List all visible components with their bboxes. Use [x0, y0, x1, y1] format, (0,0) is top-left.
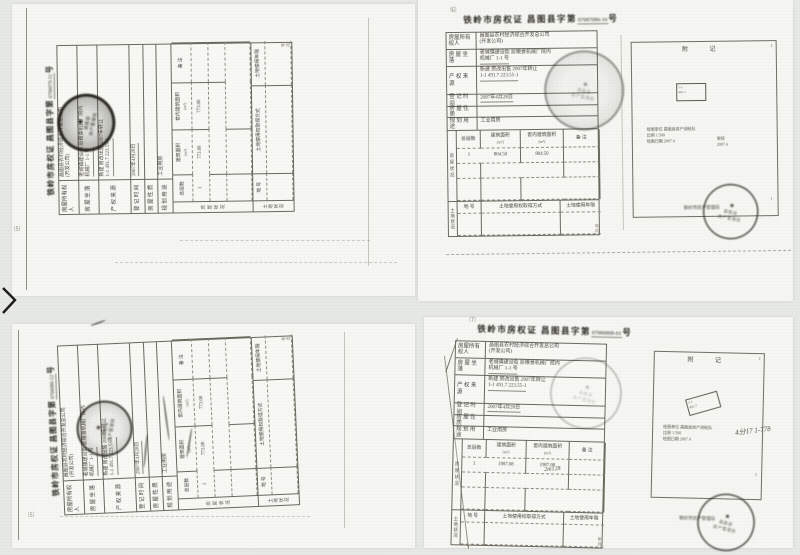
certificate-bottom-right: ⑺ 铁岭市房权证 昌图县字第07080808-61号 房屋所有权人昌图县农村经济…: [445, 318, 795, 552]
annex-page-box: 附 记 1 1 1-1491.7 绘图单位 昌图县房产测绘队比例 1:500绘图…: [631, 40, 779, 218]
land-table: 土地状况 地 号 土地使用权取得方式 土地使用年限 年月: [252, 336, 299, 506]
corner-tick: 1: [755, 472, 757, 477]
page-number-mark: ⑸: [28, 510, 34, 519]
area-table: 房屋状况 总层数 建筑面积(m²) 套内建筑面积(m²) 备 注 1 773.0…: [172, 338, 259, 509]
certificate-top-right: ⑹ 铁岭市房权证 昌图县字第07087086-16号 房屋所有权人昌图县农村经济…: [440, 0, 795, 310]
page-number-mark: ⑸: [14, 224, 20, 233]
cert-title-county: 昌图县字第: [541, 325, 591, 336]
cert-title-suffix: 号: [622, 327, 632, 337]
annex-heading: 附 记: [655, 354, 764, 365]
cert-title: 铁岭市房权证 昌图县字第07080808-61号: [477, 323, 632, 339]
page-number-mark: ⑺: [469, 315, 475, 324]
page-edge-dashes: [115, 262, 397, 263]
corner-tick: 1: [770, 43, 772, 48]
drawing-caption: 绘图单位 昌图县房产测绘队比例 1:500绘图日期 2007.4: [647, 126, 696, 145]
area-floors: 1: [197, 469, 215, 497]
cert-title-city: 铁岭市房权证: [463, 14, 523, 25]
area-built: 773.08: [196, 424, 215, 470]
cert-title-city: 铁岭市房权证: [49, 445, 60, 496]
area-floors: 1: [193, 173, 210, 200]
booklet-seam-line: [621, 35, 624, 230]
area-table: 房屋状况 总层数 建筑面积(m²) 套内建筑面积(m²) 备 注 1 804.5…: [448, 129, 599, 202]
area-side-label: 房屋状况: [174, 200, 253, 212]
corner-tick: 1: [770, 196, 772, 201]
cert-title-suffix: 号: [46, 365, 55, 374]
area-built: 1987.08: [486, 458, 526, 474]
area-inner: 804.50: [521, 148, 564, 164]
area-floors: 1: [462, 457, 486, 473]
cert-title-city: 铁岭市房权证: [46, 144, 56, 195]
cert-title-county: 昌图县字第: [527, 13, 577, 24]
form-row-owner: 房屋所有权人昌图县农村经济综合开发总公司(开发公司): [446, 31, 596, 50]
certificate-bottom-left-rotated: 铁岭市房权证 昌图县字第0706080-12号 房屋所有权人昌图县农村经济综合开…: [44, 335, 306, 516]
building-outline: 1-1491.7: [676, 83, 706, 101]
annex-heading: 附 记: [632, 43, 776, 54]
cert-title-suffix: 号: [608, 13, 618, 23]
area-table: 房屋状况 总层数 建筑面积(m²) 套内建筑面积(m²) 备 注 1 773.0…: [171, 43, 253, 212]
drawing-caption: 绘图单位 昌图县房产测绘队比例 1:500绘图日期 2007.4: [663, 424, 712, 443]
cert-title-suffix: 号: [45, 64, 54, 73]
cert-number: 07087086-16: [577, 17, 608, 24]
fold-chevron-icon: [1, 286, 19, 316]
land-table: 土地状况 地 号 土地使用权取得方式 土地使用年限 年月: [451, 510, 602, 547]
cert-title-county: 昌图县字第: [47, 399, 58, 442]
review-note: 审核2007.4: [717, 136, 728, 148]
corner-tick: 1: [758, 356, 760, 361]
land-table: 土地状况 地 号 土地使用权取得方式 土地使用年限 年月: [251, 42, 293, 211]
cert-title-city: 铁岭市房权证: [477, 324, 537, 335]
area-table: 房屋状况 总层数 建筑面积(m²) 套内建筑面积(m²) 备 注 1 1987.…: [452, 439, 604, 513]
page-edge-line: [368, 18, 369, 266]
cert-title: 铁岭市房权证 昌图县字第07087086-16号: [463, 12, 618, 26]
cert-number: 0706079-11: [49, 73, 55, 99]
area-inner: 773.08: [193, 377, 212, 425]
page-edge-line: [344, 332, 345, 528]
area-inner: 773.08: [192, 81, 210, 128]
page-edge-dashes: [60, 516, 310, 517]
page-edge-line: [26, 8, 27, 290]
cert-title-county: 昌图县字第: [45, 99, 55, 142]
land-side-label: 土地状况: [254, 199, 294, 211]
cert-number: 0706080-12: [50, 373, 57, 399]
page-bottom-dashes: [446, 250, 791, 255]
land-table: 土地状况 地 号 土地使用权取得方式 土地使用年限 年月: [449, 200, 599, 236]
scanned-documents-sheet: ⑸ 铁岭市房权证 昌图县字第0706079-11号 房屋所有权人昌图县农村经济综…: [0, 0, 800, 555]
area-built: 804.50: [481, 148, 521, 163]
area-floors: 1: [457, 149, 481, 164]
building-outline: 1-1491.7: [685, 391, 721, 416]
page-number-mark: ⑹: [450, 5, 456, 14]
area-built: 773.08: [193, 128, 211, 173]
page-edge-dashes: [180, 240, 370, 241]
page-edge-line: [18, 330, 19, 540]
certificate-top-left-rotated: 铁岭市房权证 昌图县字第0706079-11号 房屋所有权人昌图县农村经济综合开…: [43, 41, 300, 215]
cert-number: 07080808-61: [591, 330, 622, 338]
